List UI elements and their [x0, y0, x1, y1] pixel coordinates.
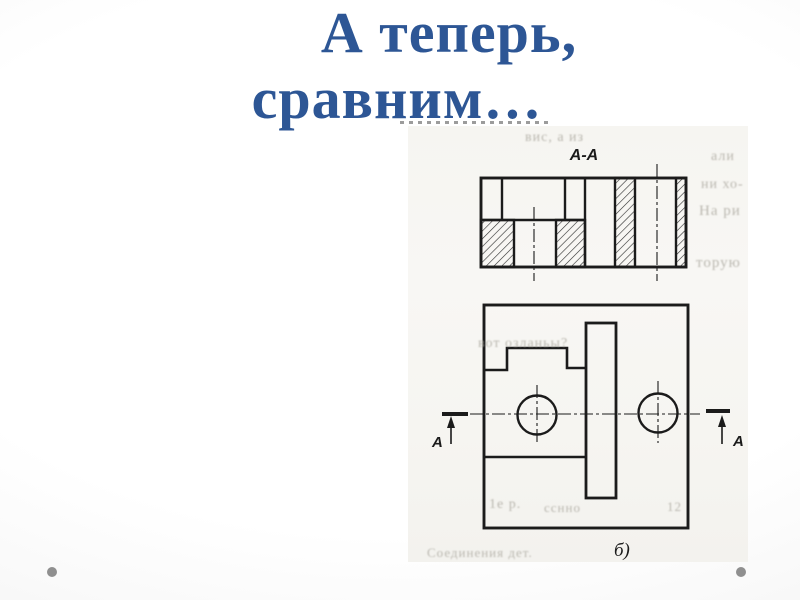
scan-artifact-text: ни хо- — [701, 177, 744, 193]
footer-dot-right-icon — [736, 567, 746, 577]
section-hatch-areas — [481, 178, 686, 267]
section-centerlines — [534, 164, 657, 281]
scan-artifact-text: вис, а из — [525, 130, 584, 146]
title-line-1: А теперь, — [321, 4, 577, 62]
plan-vertical-rib — [586, 323, 616, 498]
scan-artifact-text: На ри — [699, 203, 741, 220]
cut-letter-right: А — [732, 433, 744, 450]
scan-artifact-text: сснно — [544, 500, 581, 516]
section-view: А-А — [481, 147, 686, 281]
scan-artifact-text: Соединения дет. — [427, 545, 533, 561]
scan-artifact-text: али — [711, 149, 735, 165]
cutting-mark-left: А — [431, 414, 468, 451]
section-label: А-А — [569, 147, 598, 164]
footer-dot-left-icon — [47, 567, 57, 577]
slide: { "slide": { "title": { "line1": "А тепе… — [0, 0, 800, 600]
cut-letter-left: А — [431, 434, 443, 451]
scan-edge-artifact — [400, 121, 550, 124]
title-line-2: сравним… — [252, 70, 543, 128]
scan-artifact-text: 12 — [667, 499, 682, 515]
plan-view-label: б) — [614, 540, 630, 561]
cutting-mark-right: А — [706, 411, 744, 450]
scan-artifact-text: 1е р. — [489, 497, 521, 513]
slide-title: А теперь, сравним… — [0, 0, 800, 130]
technical-drawing: А-А А — [408, 126, 748, 562]
scanned-figure: А-А А — [408, 126, 748, 562]
scan-artifact-text: вот озланьы? — [478, 336, 568, 352]
scan-artifact-text: торую — [696, 255, 741, 272]
